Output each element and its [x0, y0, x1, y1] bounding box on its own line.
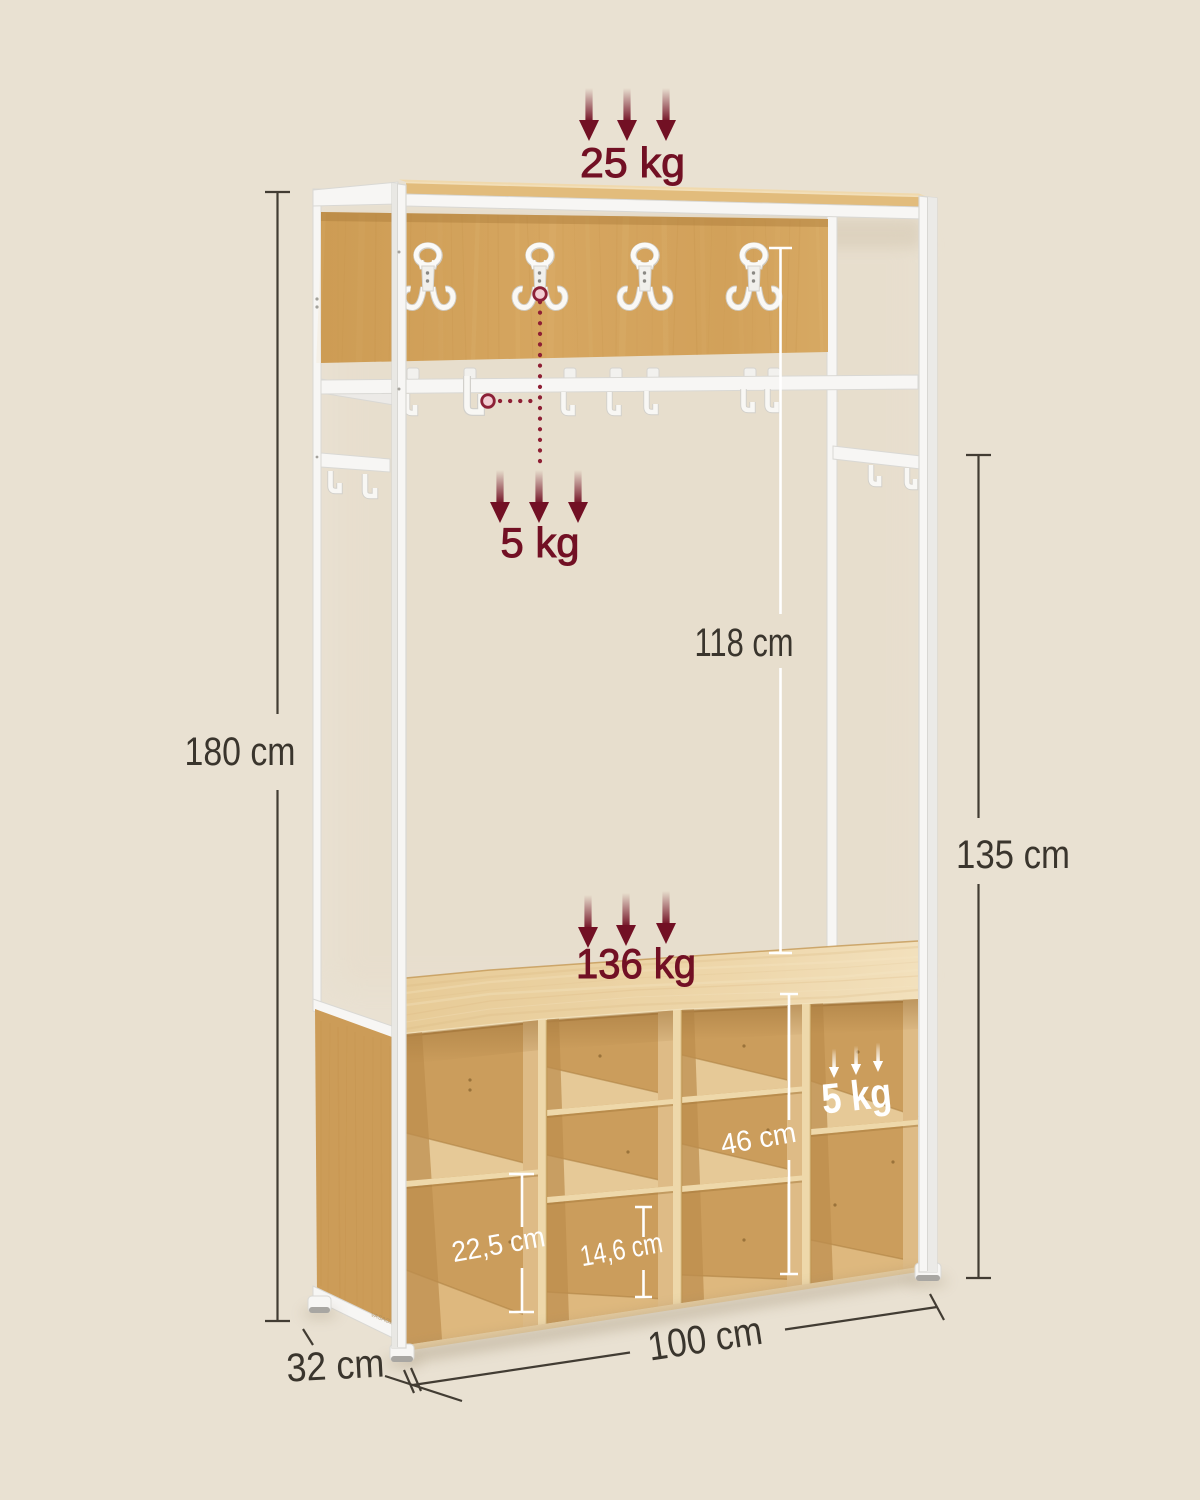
svg-text:5 kg: 5 kg: [819, 1069, 894, 1123]
svg-text:5 kg: 5 kg: [501, 519, 580, 566]
svg-text:135 cm: 135 cm: [956, 833, 1070, 877]
svg-text:32 cm: 32 cm: [285, 1341, 385, 1390]
svg-text:136 kg: 136 kg: [576, 940, 696, 987]
svg-text:180 cm: 180 cm: [185, 730, 296, 774]
svg-text:25 kg: 25 kg: [580, 139, 685, 186]
svg-text:118 cm: 118 cm: [695, 621, 794, 665]
